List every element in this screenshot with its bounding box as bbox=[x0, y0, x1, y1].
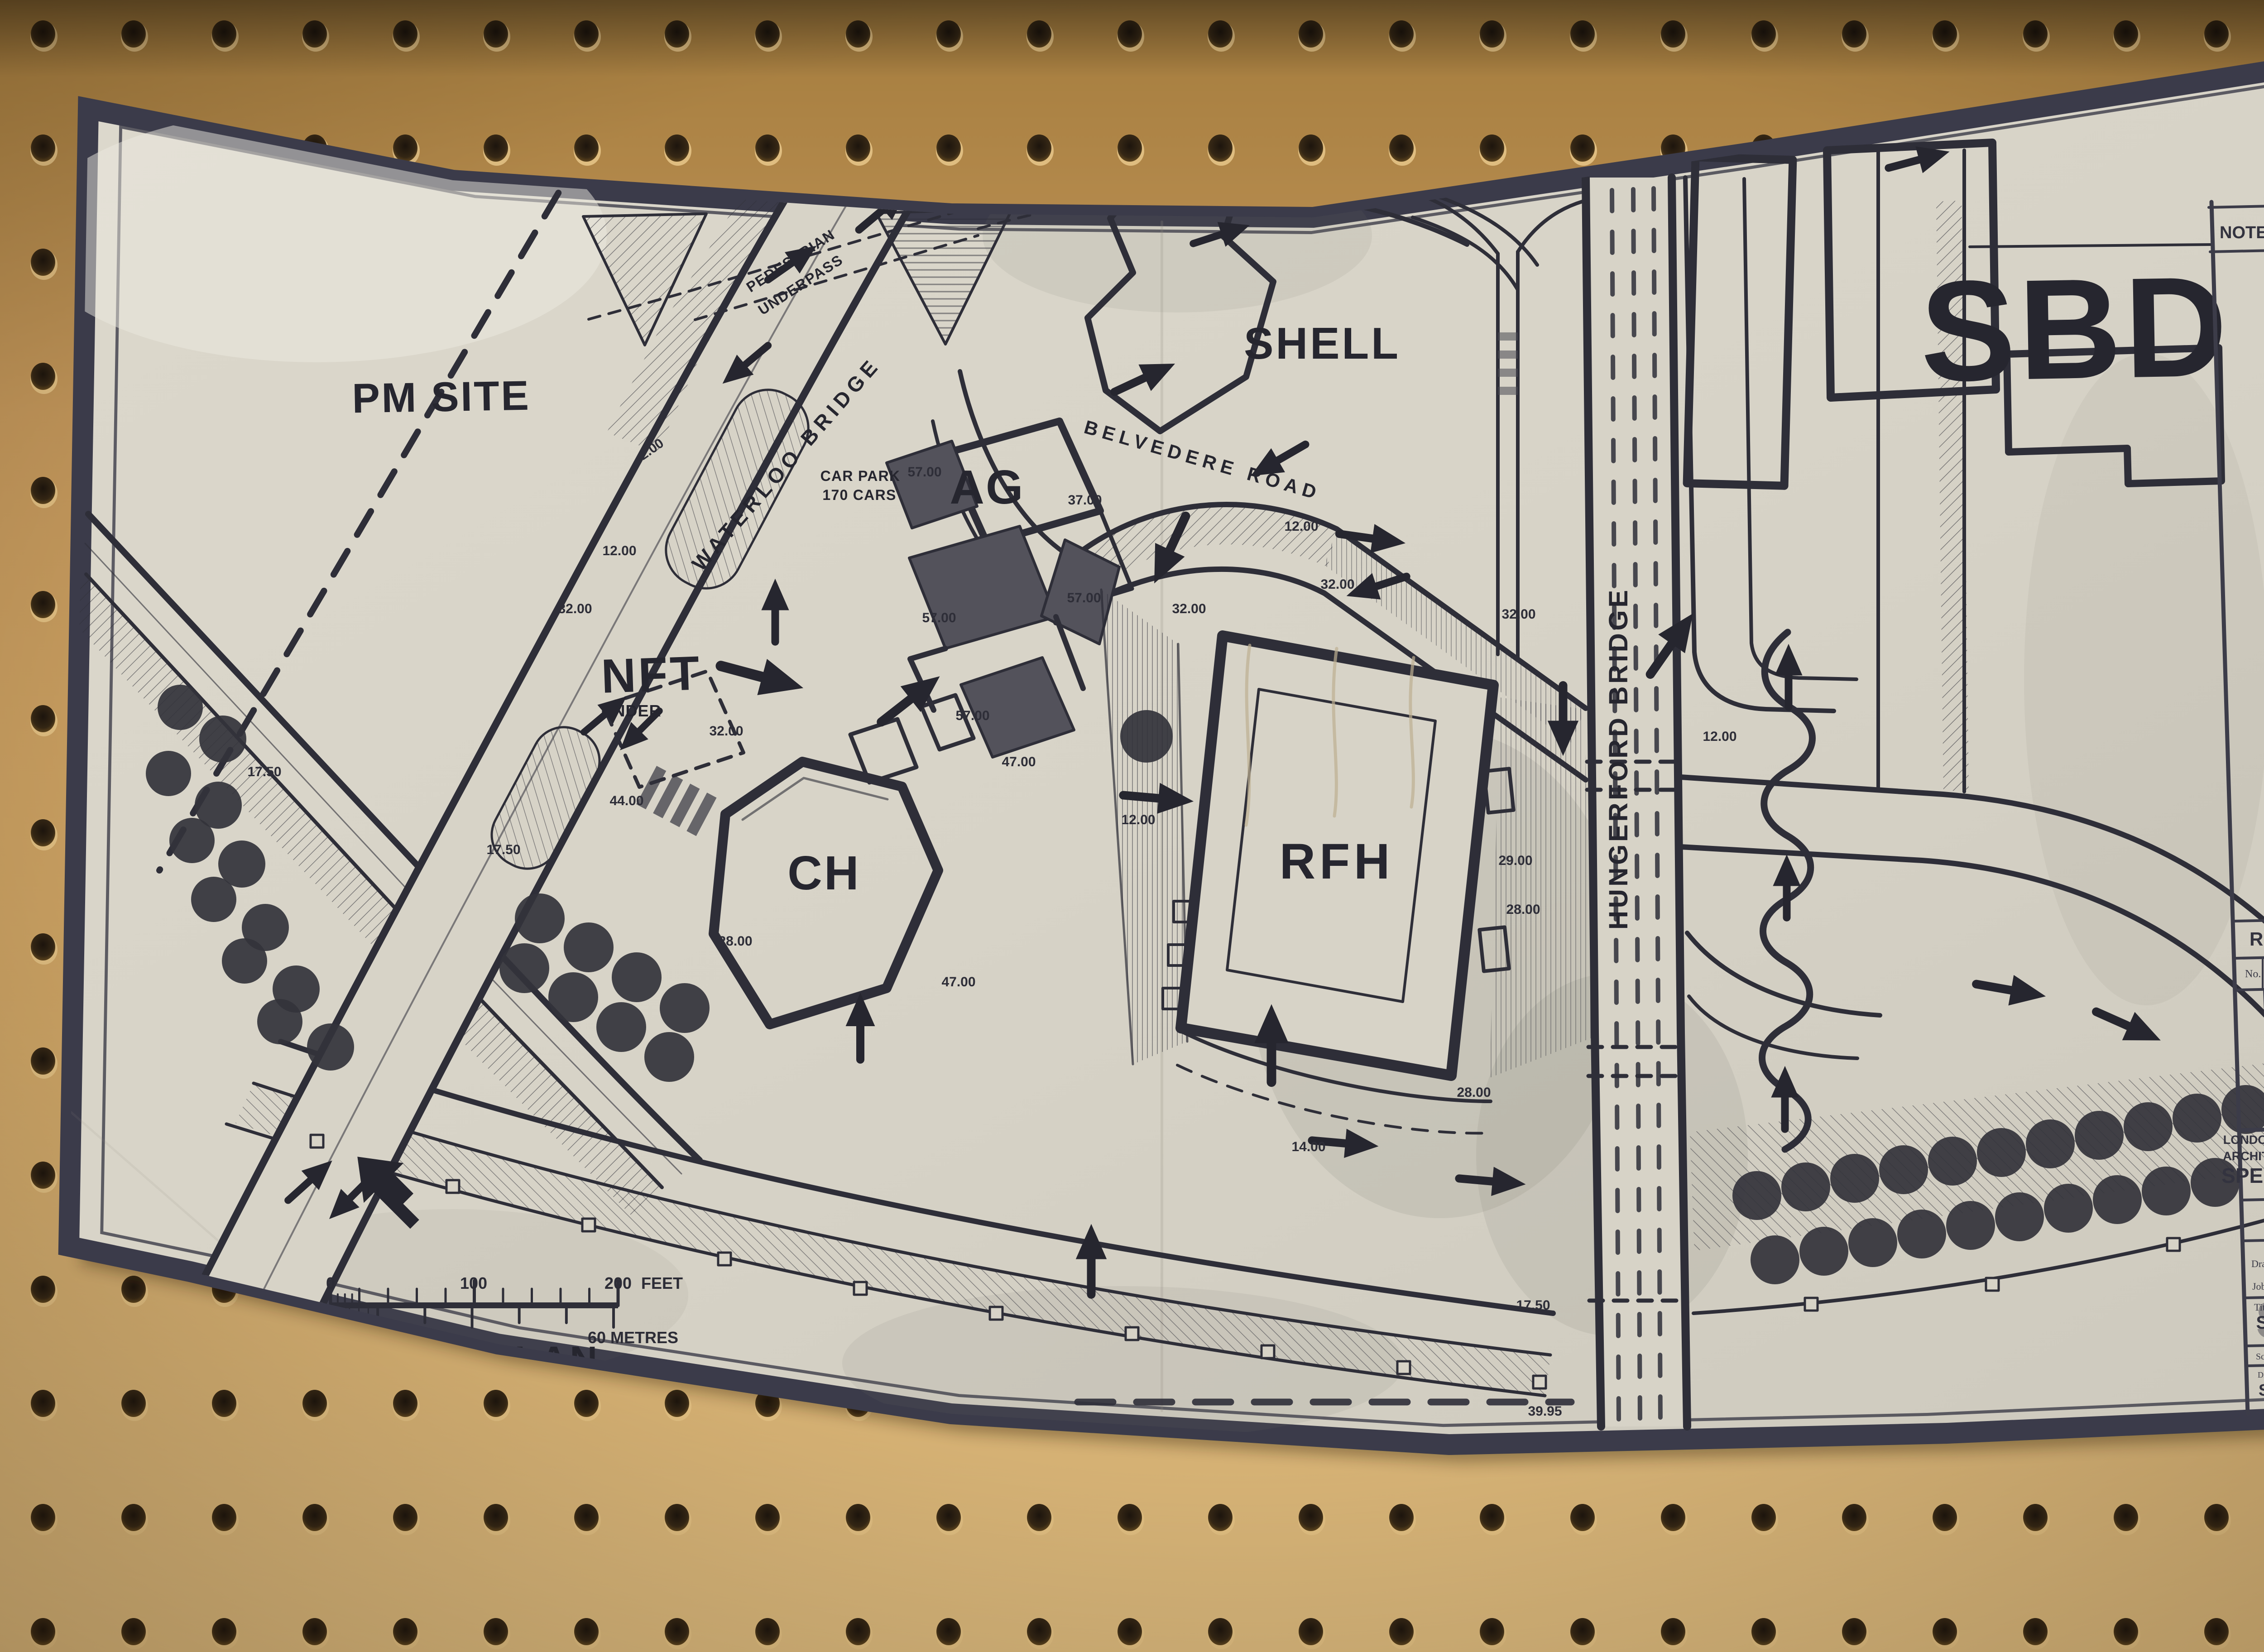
corner-mark-sbd: SBD bbox=[1919, 246, 2231, 411]
spot-level: 12.00 bbox=[1703, 729, 1736, 744]
tree-dot bbox=[257, 999, 302, 1044]
nft-under-label: UNDER bbox=[601, 701, 661, 720]
tree-dot bbox=[1848, 1218, 1897, 1267]
spot-level: 29.00 bbox=[1498, 853, 1532, 868]
spot-level: 28.00 bbox=[718, 934, 752, 949]
title-value: SITE PLAN bbox=[2256, 1313, 2264, 1333]
railing-marker bbox=[990, 1307, 1002, 1320]
tree-dot bbox=[1732, 1171, 1781, 1220]
tree-dot bbox=[1751, 1235, 1799, 1284]
spot-level: 17.50 bbox=[486, 842, 520, 857]
div-label: Div. bbox=[2258, 1370, 2264, 1379]
tree-dot bbox=[1995, 1192, 2044, 1241]
spot-level: 12.00 bbox=[1284, 519, 1318, 534]
spot-level: 12.00 bbox=[1121, 812, 1155, 827]
spot-level: 14.00 bbox=[1291, 1139, 1325, 1154]
ch-label: CH bbox=[787, 846, 861, 900]
tree-dot bbox=[564, 922, 614, 972]
arrow-shaft bbox=[1339, 534, 1374, 539]
tree-dot bbox=[1897, 1210, 1946, 1258]
tree-dot bbox=[199, 716, 246, 763]
arrow-shaft bbox=[1123, 795, 1160, 798]
railing-marker bbox=[582, 1219, 595, 1231]
spot-level: 17.50 bbox=[247, 764, 281, 779]
rfh-label: RFH bbox=[1280, 834, 1394, 889]
photo-of-site-plan: SBDPM SITEWATERLOO BRIDGEPEDESTRIANUNDER… bbox=[0, 0, 2264, 1652]
org-line-1: LONDON COUNTY COUNCIL bbox=[2223, 1133, 2264, 1147]
railing-marker bbox=[1533, 1376, 1546, 1388]
tree-dot bbox=[644, 1032, 694, 1082]
spot-level: 57.00 bbox=[1067, 591, 1101, 605]
notes-header: NOTES bbox=[2220, 223, 2264, 242]
spot-level: 12.00 bbox=[602, 543, 636, 558]
div-value: SW bbox=[2259, 1381, 2264, 1399]
tree-dot bbox=[596, 1002, 646, 1052]
tree-dot bbox=[1120, 710, 1173, 763]
tree-dot bbox=[2093, 1175, 2142, 1224]
spot-level: 17.50 bbox=[1516, 1298, 1550, 1313]
railing-marker bbox=[1126, 1327, 1138, 1340]
railing-marker bbox=[1262, 1345, 1274, 1358]
spot-level: 57.00 bbox=[922, 610, 956, 625]
car-park-label-2: 170 CARS bbox=[822, 487, 896, 503]
drawing-sheet: SBDPM SITEWATERLOO BRIDGEPEDESTRIANUNDER… bbox=[27, 51, 2264, 1463]
railing-marker bbox=[1805, 1298, 1818, 1311]
org-line-3: SPECIAL WORKS bbox=[2221, 1164, 2264, 1187]
spot-level: 32.00 bbox=[1320, 577, 1354, 592]
title-label: Title bbox=[2254, 1301, 2264, 1313]
org-line-2: ARCHITECT'S DEPARTMENT bbox=[2223, 1149, 2264, 1163]
railing-marker bbox=[1397, 1361, 1410, 1374]
tree-dot bbox=[515, 893, 565, 943]
hungerford-bridge-label: HUNGERFORD BRIDGE bbox=[1604, 587, 1633, 930]
tree-dot bbox=[2026, 1119, 2075, 1168]
spot-level: 47.00 bbox=[1002, 754, 1036, 769]
tree-dot bbox=[1977, 1128, 2026, 1177]
tree-dot bbox=[222, 938, 267, 984]
tree-dot bbox=[1830, 1154, 1879, 1203]
spot-level: 28.00 bbox=[1506, 902, 1540, 917]
tree-dot bbox=[499, 943, 549, 993]
scale-hundred: 100 bbox=[460, 1274, 487, 1292]
drawn-label: Drawn bbox=[2251, 1258, 2264, 1269]
nft-label: NFT bbox=[600, 646, 703, 703]
ag-label: AG bbox=[950, 461, 1024, 514]
spot-level: 32.00 bbox=[709, 724, 743, 739]
tree-dot bbox=[1946, 1201, 1995, 1250]
tree-dot bbox=[169, 818, 215, 863]
scale-two-hundred: 200 bbox=[604, 1274, 632, 1292]
tree-dot bbox=[2173, 1094, 2221, 1143]
spot-level: 32.00 bbox=[558, 601, 592, 616]
scale-feet-unit: FEET bbox=[641, 1274, 683, 1292]
tree-dot bbox=[1799, 1227, 1848, 1276]
tree-dot bbox=[548, 972, 598, 1022]
revisions-no-col: No. bbox=[2245, 968, 2261, 980]
tree-dot bbox=[307, 1023, 354, 1071]
tree-dot bbox=[612, 952, 662, 1002]
spot-level: 44.00 bbox=[609, 793, 643, 808]
tree-dot bbox=[2124, 1102, 2173, 1151]
shell-label: SHELL bbox=[1244, 318, 1401, 368]
tree-dot bbox=[1928, 1137, 1977, 1186]
spot-level: 39.95 bbox=[1528, 1404, 1562, 1419]
spot-level: 32.00 bbox=[1172, 601, 1206, 616]
spot-level: 37.00 bbox=[1068, 493, 1102, 508]
pm-site-label: PM SITE bbox=[352, 373, 531, 422]
plaza-east-of-rfh bbox=[1490, 697, 1594, 1078]
railing-marker bbox=[2167, 1238, 2180, 1251]
tree-dot bbox=[2142, 1167, 2191, 1215]
spot-level: 57.00 bbox=[907, 465, 941, 480]
railing-marker bbox=[854, 1282, 867, 1295]
scale-zero: 0 bbox=[326, 1274, 335, 1292]
tree-dot bbox=[191, 877, 236, 922]
spot-level: 57.00 bbox=[955, 708, 989, 723]
arrow-shaft bbox=[1459, 1178, 1494, 1181]
tree-dot bbox=[2075, 1111, 2124, 1160]
tree-dot bbox=[1879, 1145, 1928, 1194]
spot-level: 28.00 bbox=[1457, 1085, 1491, 1100]
tree-dot bbox=[660, 983, 710, 1033]
tree-dot bbox=[158, 685, 203, 730]
railing-marker bbox=[1986, 1278, 1999, 1291]
revisions-header: REVISIONS bbox=[2250, 928, 2264, 950]
railing-marker bbox=[718, 1253, 731, 1265]
tree-dot bbox=[1781, 1162, 1830, 1211]
scale-label: Scale bbox=[2256, 1352, 2264, 1362]
tree-dot bbox=[146, 751, 191, 796]
tree-dot bbox=[2044, 1184, 2093, 1233]
spot-level: 32.00 bbox=[1501, 607, 1535, 622]
scale-metres: 60 METRES bbox=[588, 1328, 678, 1347]
railing-marker bbox=[446, 1180, 459, 1193]
railing-marker bbox=[311, 1135, 323, 1148]
spot-level: 47.00 bbox=[941, 975, 975, 989]
car-park-label-1: CAR PARK bbox=[820, 468, 901, 484]
